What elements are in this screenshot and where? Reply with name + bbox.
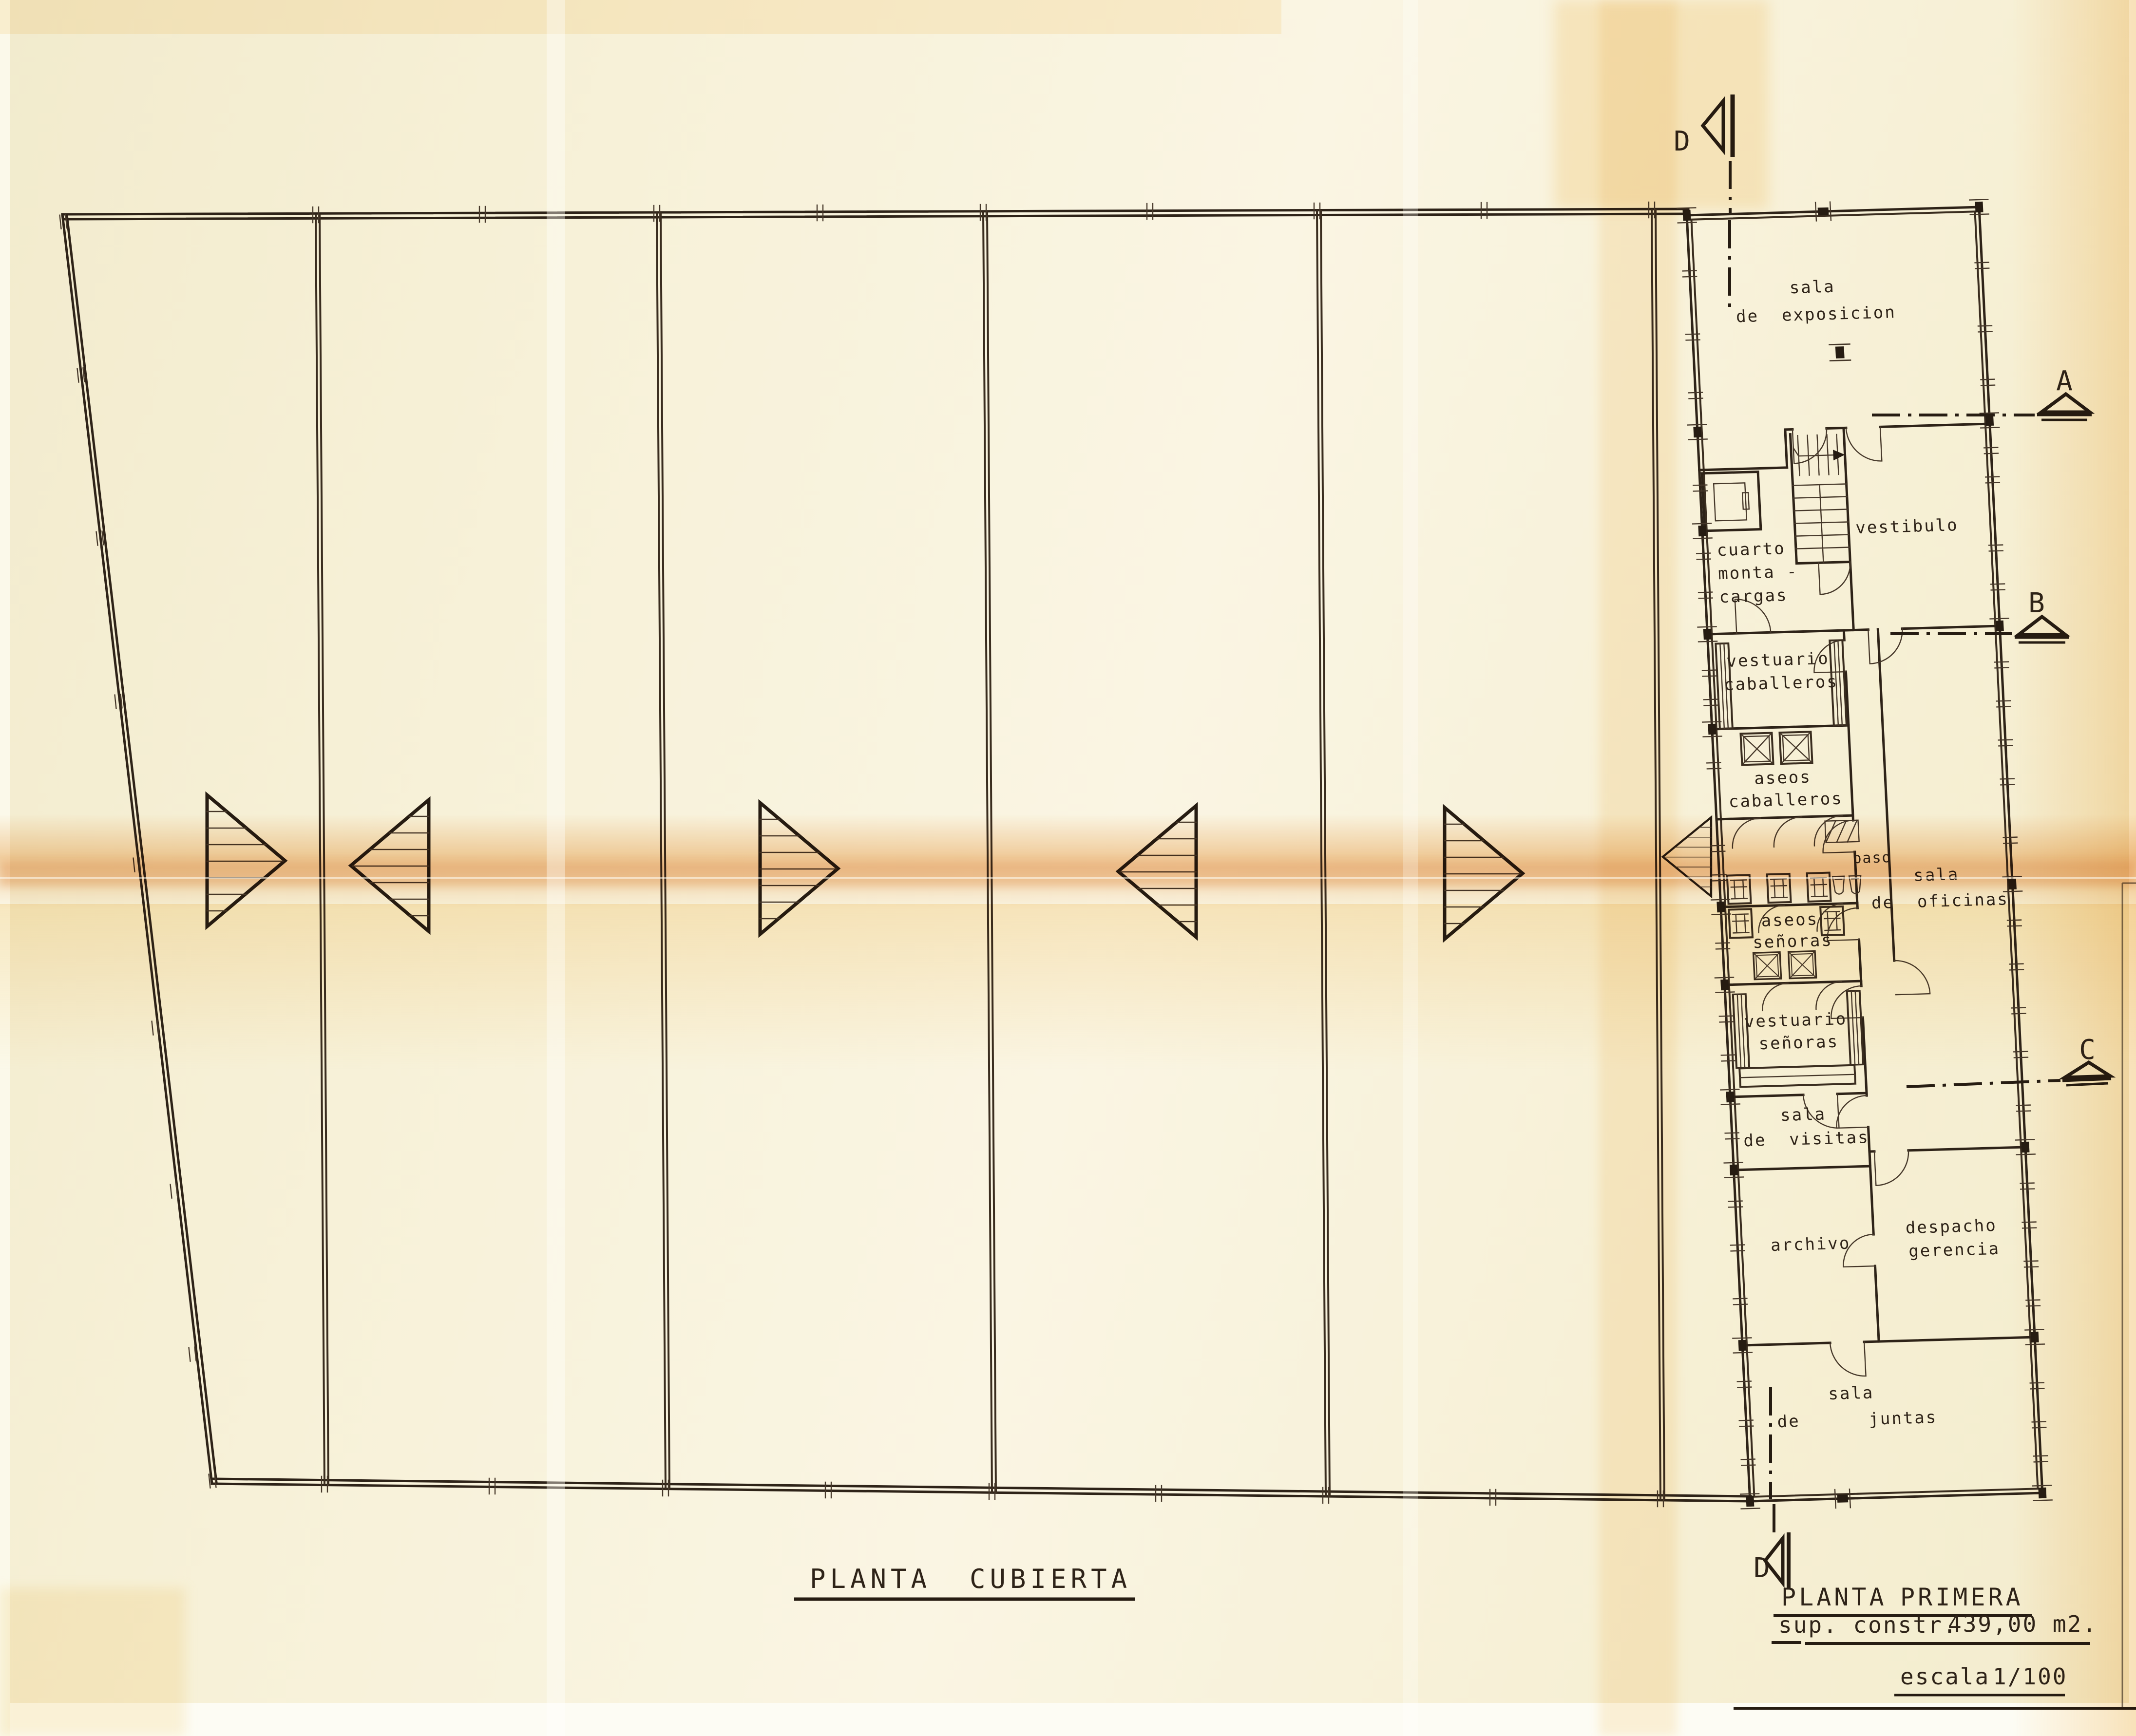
room-label-montacargas-2: monta -	[1717, 562, 1798, 584]
first-floor-plan: sala de exposicion cuarto monta - cargas…	[1677, 197, 2052, 1510]
exposicion-column	[1830, 344, 1850, 360]
room-label-vestibulo: vestibulo	[1855, 515, 1959, 538]
room-label-sala-exposicion-1: sala	[1789, 277, 1836, 298]
room-label-aseos-sen-2: señoras	[1752, 931, 1833, 953]
roof-slope-arrows	[207, 795, 1711, 939]
room-label-vestuario-cab-2: caballeros	[1723, 672, 1839, 695]
roof-column-ticks	[60, 202, 1663, 1507]
blueprint-canvas: sala de exposicion cuarto monta - cargas…	[0, 0, 2136, 1736]
area-label: sup. constr.	[1778, 1612, 1958, 1638]
section-letter-a: A	[2056, 365, 2073, 397]
area-value: 439,00 m2.	[1948, 1611, 2098, 1637]
roof-title-word1: PLANTA	[810, 1564, 931, 1594]
floor-title-word2: PRIMERA	[1900, 1583, 2023, 1611]
section-marker-b: B	[1890, 587, 2069, 642]
section-letter-b: B	[2028, 587, 2045, 619]
stair-direction-arrow-icon	[1833, 450, 1845, 461]
roof-plan	[60, 202, 1751, 1507]
room-label-vestuario-sen-2: señoras	[1758, 1032, 1839, 1054]
roof-bay-division-lines	[316, 210, 1664, 1499]
room-label-oficinas-2: de oficinas	[1871, 889, 2009, 913]
room-label-juntas-2: de juntas	[1777, 1408, 1938, 1432]
section-marker-c: C	[1907, 1034, 2111, 1087]
title-blocks: PLANTA CUBIERTA PLANTA PRIMERA sup. cons…	[794, 1564, 2098, 1695]
scanned-blueprint-page: { "document": { "type": "architectural p…	[0, 0, 2136, 1736]
room-label-visitas-1: sala	[1780, 1105, 1827, 1126]
room-label-aseos-cab-1: aseos	[1754, 767, 1812, 788]
room-label-vestuario-cab-1: vestuario	[1726, 649, 1830, 671]
section-letter-c: C	[2079, 1034, 2096, 1066]
room-label-archivo: archivo	[1770, 1233, 1851, 1255]
room-label-paso: paso	[1852, 849, 1892, 867]
section-marker-a: A	[1872, 365, 2092, 420]
section-letter-d-top: D	[1674, 126, 1690, 157]
room-label-aseos-sen-1: aseos	[1761, 909, 1819, 930]
floor-interior-walls	[1697, 424, 2035, 1345]
room-label-despacho-1: despacho	[1905, 1216, 1998, 1238]
scale-value: 1/100	[1993, 1663, 2067, 1690]
room-label-montacargas-1: cuarto	[1716, 539, 1786, 560]
room-label-juntas-1: sala	[1828, 1383, 1874, 1404]
room-label-vestuario-sen-1: vestuario	[1744, 1009, 1848, 1032]
section-marker-d-top: D	[1674, 94, 1733, 312]
roof-title-word2: CUBIERTA	[970, 1564, 1131, 1594]
room-label-montacargas-3: cargas	[1719, 585, 1789, 607]
room-label-sala-exposicion-2: de exposicion	[1735, 302, 1896, 326]
elevator-shaft	[1702, 472, 1761, 531]
floor-title-word1: PLANTA	[1781, 1583, 1887, 1611]
stairs	[1791, 434, 1850, 564]
room-label-oficinas-1: sala	[1913, 865, 1960, 886]
roof-plan-outline	[62, 209, 1751, 1501]
room-label-despacho-2: gerencia	[1908, 1239, 2001, 1261]
room-label-aseos-cab-2: caballeros	[1728, 789, 1844, 812]
scale-label: escala	[1900, 1663, 1990, 1690]
room-label-visitas-2: de visitas	[1743, 1128, 1869, 1151]
